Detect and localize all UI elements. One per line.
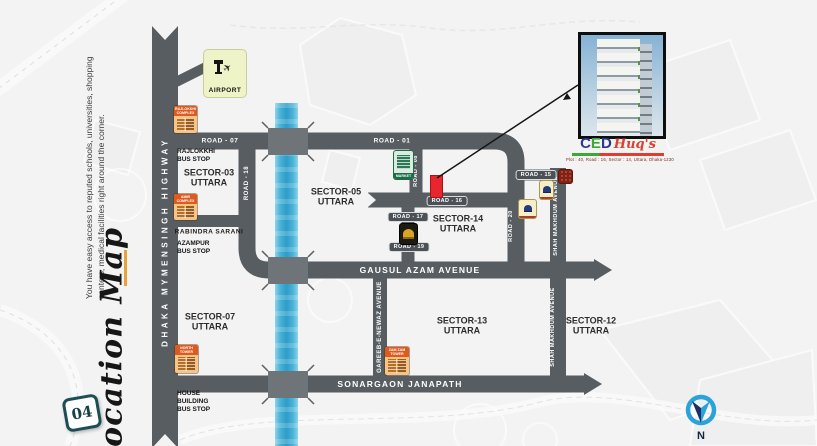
- sector-03-label: SECTOR-03UTTARA: [184, 168, 234, 189]
- sector-area: UTTARA: [440, 224, 476, 234]
- landmark-label: [519, 216, 536, 218]
- mosque-icon: [540, 181, 553, 197]
- label-rabindra-sarani: RABINDRA SARANI: [175, 229, 244, 236]
- mosque-landmark: [519, 200, 536, 218]
- mosque-icon: [519, 200, 536, 216]
- mosque-icon: [400, 224, 417, 244]
- sector-name: SECTOR-12: [566, 316, 616, 326]
- landmark-label: [540, 197, 553, 199]
- mosque-landmark: [400, 224, 417, 244]
- building-side: [640, 44, 652, 136]
- brand-letter: C: [580, 135, 591, 152]
- brand-address: Plot : 40, Road : 16, Sector : 14, Uttar…: [566, 157, 670, 162]
- sector-area: UTTARA: [318, 197, 354, 207]
- project-site-marker: [431, 176, 442, 197]
- label-road-17: ROAD - 17: [388, 212, 429, 222]
- sector-name: SECTOR-03: [184, 168, 234, 178]
- label-gausul-azam-avenue: GAUSUL AZAM AVENUE: [360, 265, 481, 275]
- label-road-20: ROAD - 20: [508, 210, 514, 242]
- amir-complex-landmark: AMIR COMPLEX: [174, 194, 197, 220]
- building-icon: [385, 357, 409, 375]
- north-tower-landmark: NORTH TOWER: [175, 345, 198, 373]
- label-road-08: ROAD - 08: [413, 155, 419, 187]
- landmark-label: RAJLOKKHI COMPLEX: [174, 106, 197, 116]
- shrine-icon: [559, 170, 572, 183]
- control-tower-icon: [217, 64, 220, 74]
- project-building-photo: [578, 32, 666, 139]
- label-sonargaon-janapath: SONARGAON JANAPATH: [337, 379, 462, 389]
- brand-letter: D: [601, 135, 612, 152]
- compass-icon: [685, 394, 717, 426]
- label-road-15: ROAD - 15: [516, 170, 557, 180]
- label-shah-makhdum-avenue-south: SHAH MAKHDUM AVENUE: [550, 287, 556, 366]
- sector-area: UTTARA: [444, 326, 480, 336]
- label-shah-makhdum-avenue-north: SHAH MAKHDUM AVENUE: [553, 176, 559, 255]
- sector-05-label: SECTOR-05UTTARA: [311, 187, 361, 208]
- airport-landmark: ✈ AIRPORT: [204, 50, 246, 97]
- brand-underline: [572, 153, 664, 156]
- building-facade: [597, 39, 640, 136]
- sonargaon-east-arrow: [584, 373, 602, 395]
- landmark-label: NORTH TOWER: [175, 345, 198, 355]
- sector-12-label: SECTOR-12UTTARA: [566, 316, 616, 337]
- airport-label: AIRPORT: [209, 87, 242, 94]
- shrine-landmark: [559, 170, 572, 183]
- sector-13-label: SECTOR-13UTTARA: [437, 316, 487, 337]
- sector-area: UTTARA: [191, 178, 227, 188]
- building-icon: [175, 355, 198, 373]
- sector-area: UTTARA: [192, 322, 228, 332]
- brand-letter: E: [591, 135, 601, 152]
- location-map-page: DHAKA MYMENSINGH HIGHWAY ROAD - 07 ROAD …: [0, 0, 817, 446]
- house-building-bus-stop-label: HOUSE BUILDING BUS STOP: [177, 390, 211, 414]
- bridges: [268, 128, 308, 398]
- mosque-landmark: [540, 181, 553, 199]
- zam-zam-tower-landmark: ZAM ZAM TOWER: [385, 347, 409, 375]
- sector-name: SECTOR-05: [311, 187, 361, 197]
- azampur-bus-stop-label: AZAMPUR BUS STOP: [177, 240, 215, 256]
- market-icon: [394, 151, 413, 173]
- brand-logo: CED Huq's Plot : 40, Road : 16, Sector :…: [566, 135, 670, 162]
- market-landmark: MARKET: [394, 151, 413, 179]
- label-road-18: ROAD - 18: [244, 166, 250, 200]
- airport-tower-icon: ✈: [204, 50, 246, 87]
- label-road-01: ROAD - 01: [374, 138, 411, 145]
- brand-ced: CED: [580, 135, 612, 152]
- compass-north-label: N: [697, 430, 705, 442]
- label-dhaka-mymensingh-highway: DHAKA MYMENSINGH HIGHWAY: [161, 137, 170, 347]
- building-icon: [174, 116, 197, 133]
- landmark-label: MARKET: [394, 173, 413, 179]
- sector-name: SECTOR-13: [437, 316, 487, 326]
- sector-name: SECTOR-14: [433, 214, 483, 224]
- plane-icon: ✈: [222, 62, 235, 75]
- brand-wordmark: CED Huq's: [566, 135, 670, 152]
- page-number-badge: 04: [61, 393, 102, 433]
- label-road-07: ROAD - 07: [202, 138, 239, 145]
- sector-area: UTTARA: [573, 326, 609, 336]
- landmark-label: AMIR COMPLEX: [174, 194, 197, 204]
- rajlokkhi-bus-stop-label: RAJLOKKHI BUS STOP: [177, 148, 215, 164]
- sector-14-label: SECTOR-14UTTARA: [433, 214, 483, 235]
- label-road-16: ROAD - 16: [427, 196, 468, 206]
- gausul-east-arrow: [594, 259, 612, 281]
- brand-script: Huq's: [614, 137, 656, 152]
- sector-name: SECTOR-07: [185, 312, 235, 322]
- label-gareeb-e-newaz-avenue: GAREEB-E-NEWAZ AVENUE: [377, 281, 383, 373]
- sector-07-label: SECTOR-07UTTARA: [185, 312, 235, 333]
- building-icon: [174, 204, 197, 220]
- landmark-label: ZAM ZAM TOWER: [385, 347, 409, 357]
- rajlokkhi-complex-landmark: RAJLOKKHI COMPLEX: [174, 106, 197, 133]
